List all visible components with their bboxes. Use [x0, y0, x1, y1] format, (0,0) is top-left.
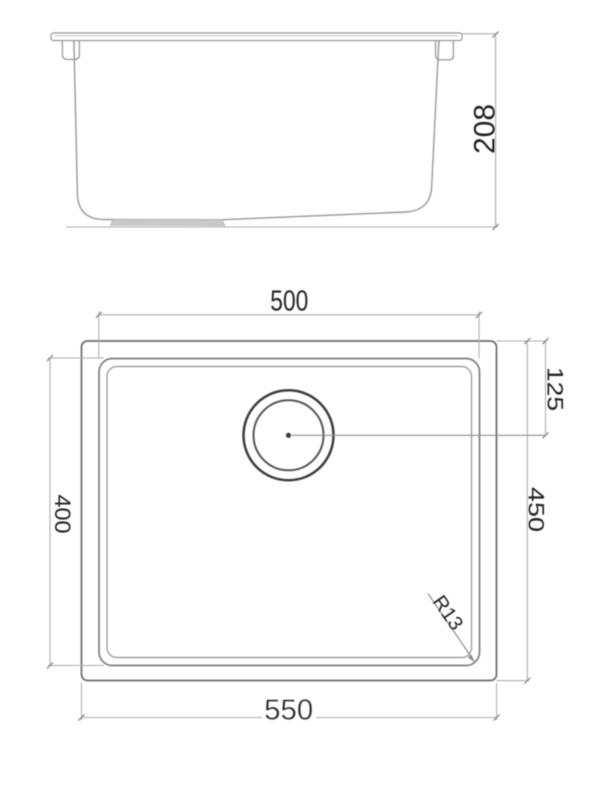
- svg-text:450: 450: [524, 487, 549, 532]
- svg-text:500: 500: [270, 286, 308, 318]
- svg-text:550: 550: [264, 695, 313, 727]
- svg-text:400: 400: [50, 495, 75, 534]
- svg-text:208: 208: [469, 104, 502, 154]
- svg-text:R13: R13: [428, 592, 467, 635]
- svg-text:125: 125: [543, 367, 568, 411]
